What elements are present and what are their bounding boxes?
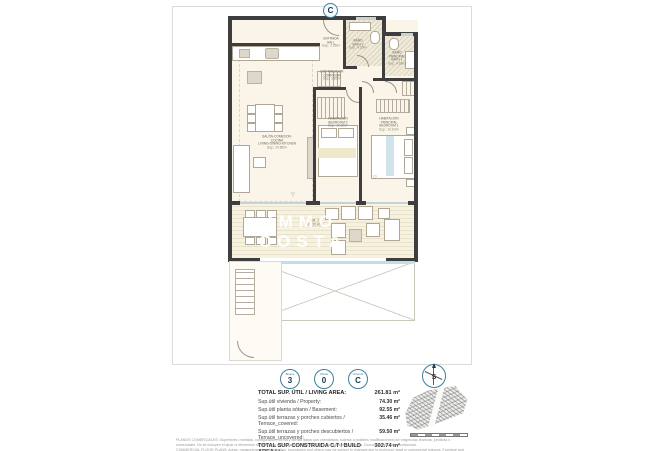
- room-area: Sup.: 4.20m²: [347, 46, 369, 50]
- wall: [228, 16, 232, 262]
- wall: [228, 201, 240, 205]
- watermark: IMMO COSTA: [233, 212, 373, 252]
- sofa: [233, 145, 250, 193]
- table-row: Sup.útil vivienda / Property: 74.30 m²: [258, 399, 400, 405]
- room-area: Sup.: 4.65m²: [384, 62, 410, 66]
- badge-vivienda: Vivienda C: [348, 369, 368, 389]
- pillow: [338, 128, 354, 138]
- badge-value: 3: [288, 376, 292, 385]
- dining-chair: [274, 114, 283, 123]
- dining-chair: [247, 114, 256, 123]
- row-label: Sup.útil terrazas y porches cubiertos / …: [258, 415, 379, 427]
- row-label: Sup.útil planta sótano / Basement:: [258, 407, 337, 413]
- bedroom1-wardrobe: [376, 99, 410, 113]
- dining-table: [255, 104, 275, 132]
- row-value: 35.46 m²: [379, 415, 400, 427]
- table-row: Sup.útil planta sótano / Basement: 92.55…: [258, 407, 400, 413]
- room-label-bath1: BAÑO PRINCIPAL BATH 1 Sup.: 4.65m²: [384, 51, 410, 66]
- wall: [306, 201, 320, 205]
- wall: [373, 78, 418, 81]
- coffee-table: [253, 157, 266, 168]
- room-label-bedroom2: HABITACIÓN BEDROOM 2 Sup.: 10.90m²: [324, 117, 351, 128]
- room-label-corridor: DISTRIBUIDOR CORRIDOR Sup.: 3.85m²: [319, 70, 345, 81]
- row-value: 261.81 m²: [375, 390, 401, 396]
- pillow: [404, 139, 413, 156]
- room-area: Sup.: 3.85m²: [319, 77, 345, 81]
- staircase: [232, 20, 320, 43]
- sliding-door-glass: [240, 202, 306, 204]
- row-label: Sup.útil vivienda / Property:: [258, 399, 321, 405]
- row-value: 74.30 m²: [379, 399, 400, 405]
- floor-plan-page: ▽ ▽ ENTRADA HALL Sup.: 2.05m² BAÑO BATH …: [0, 0, 645, 451]
- bath1-toilet: [389, 38, 399, 50]
- room-area: Sup.: 14.10m²: [374, 128, 404, 132]
- sliding-door-glass: [366, 202, 408, 204]
- table-row: TOTAL SUP. ÚTIL / LIVING AREA: 261.81 m²: [258, 390, 400, 396]
- disclaimer-line-en: COMMERCIAL FLOOR PLANS: Areas, measureme…: [176, 448, 468, 451]
- wall: [232, 43, 320, 46]
- wall: [408, 201, 418, 205]
- bath2-sink: [349, 22, 371, 31]
- bath2-toilet: [370, 31, 380, 44]
- dining-chair: [247, 123, 256, 132]
- dining-chair: [247, 105, 256, 114]
- kitchen-sink: [239, 49, 250, 58]
- door-marker-icon: ▽: [373, 176, 377, 181]
- badge-planta: Planta 0: [314, 369, 334, 389]
- sliding-door-glass: [320, 202, 356, 204]
- window: [356, 17, 376, 20]
- site-plan-thumbnail: [404, 385, 468, 431]
- window: [401, 33, 413, 36]
- compass-arrow: [432, 363, 436, 368]
- kitchen-island: [247, 71, 262, 84]
- terrace-planter: [378, 208, 390, 219]
- wall: [316, 87, 346, 90]
- wall: [343, 66, 357, 69]
- unit-marker-badge: C: [323, 3, 338, 18]
- wall: [414, 32, 418, 262]
- badge-bloque: Bloque 3: [280, 369, 300, 389]
- stove-icon: [265, 48, 279, 59]
- compass-letter: S: [423, 374, 445, 381]
- wall: [382, 20, 385, 78]
- bed-blanket: [318, 148, 356, 158]
- wall: [359, 87, 362, 201]
- sun-lounger: [384, 219, 400, 241]
- watermark-line1: IMMO: [233, 212, 373, 232]
- dining-chair: [274, 123, 283, 132]
- room-area: Sup.: 10.90m²: [324, 124, 351, 128]
- exterior-stairs: [235, 269, 255, 315]
- pillow: [404, 157, 413, 174]
- pillow: [321, 128, 337, 138]
- compass-icon: S: [422, 364, 446, 388]
- room-area: Sup.: 24.85m²: [258, 146, 296, 150]
- badge-value: 0: [322, 376, 326, 385]
- disclaimer-line-es: PLANOS COMERCIALES: Superficies, medidas…: [176, 438, 468, 448]
- dining-chair: [274, 105, 283, 114]
- room-area: Sup.: 2.05m²: [318, 44, 344, 48]
- row-label: TOTAL SUP. ÚTIL / LIVING AREA:: [258, 390, 346, 396]
- room-label-bath2: BAÑO BATH 2 Sup.: 4.20m²: [347, 39, 369, 50]
- door-marker-icon: ▽: [291, 193, 295, 198]
- watermark-line2: COSTA: [233, 232, 373, 252]
- table-row: Sup.útil terrazas y porches cubiertos / …: [258, 415, 400, 427]
- room-label-bedroom1: HABITACIÓN PRINCIPAL BEDROOM 1 Sup.: 14.…: [374, 117, 404, 132]
- unit-letter: C: [328, 6, 334, 15]
- room-label-hall: ENTRADA HALL Sup.: 2.05m²: [318, 37, 344, 48]
- badge-value: C: [355, 376, 361, 385]
- disclaimer: PLANOS COMERCIALES: Superficies, medidas…: [176, 438, 468, 451]
- bed-throw: [386, 136, 394, 176]
- wall: [356, 201, 366, 205]
- scale-bar: [410, 433, 468, 437]
- row-value: 92.55 m²: [379, 407, 400, 413]
- plan-frame: ▽ ▽ ENTRADA HALL Sup.: 2.05m² BAÑO BATH …: [172, 6, 472, 365]
- room-label-living: SALÓN-COMEDOR-COCINA LIVING-DINING-KITCH…: [258, 135, 296, 150]
- wall: [313, 87, 316, 201]
